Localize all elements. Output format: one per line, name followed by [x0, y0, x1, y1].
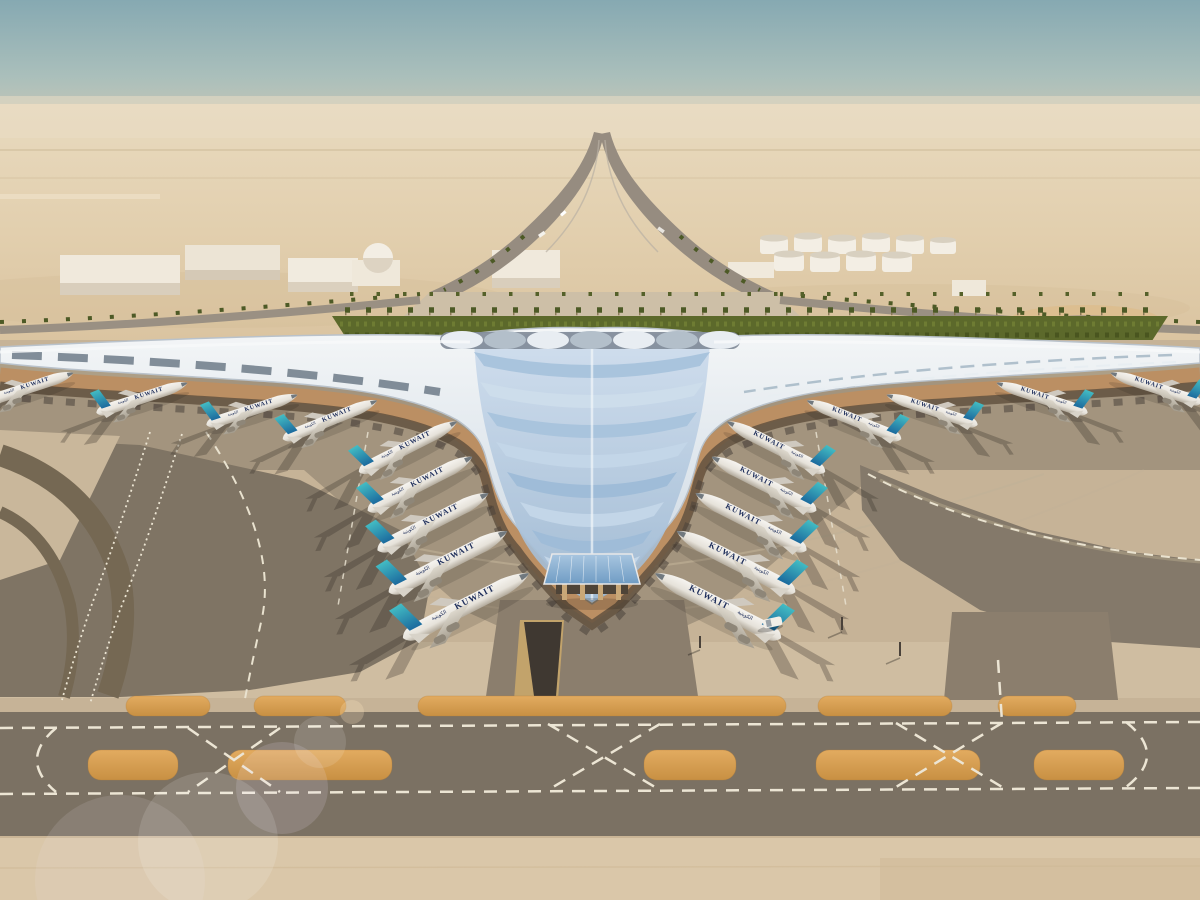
roof-dome-row [440, 331, 741, 349]
scene-canvas: الكويتية KUWAIT KUWAIT الكويتية [0, 0, 1200, 900]
apex-pavilion [544, 554, 640, 610]
airport-aerial-rendering: الكويتية KUWAIT KUWAIT الكويتية [0, 0, 1200, 900]
horizon-haze [0, 96, 1200, 138]
dome-building [363, 243, 393, 273]
